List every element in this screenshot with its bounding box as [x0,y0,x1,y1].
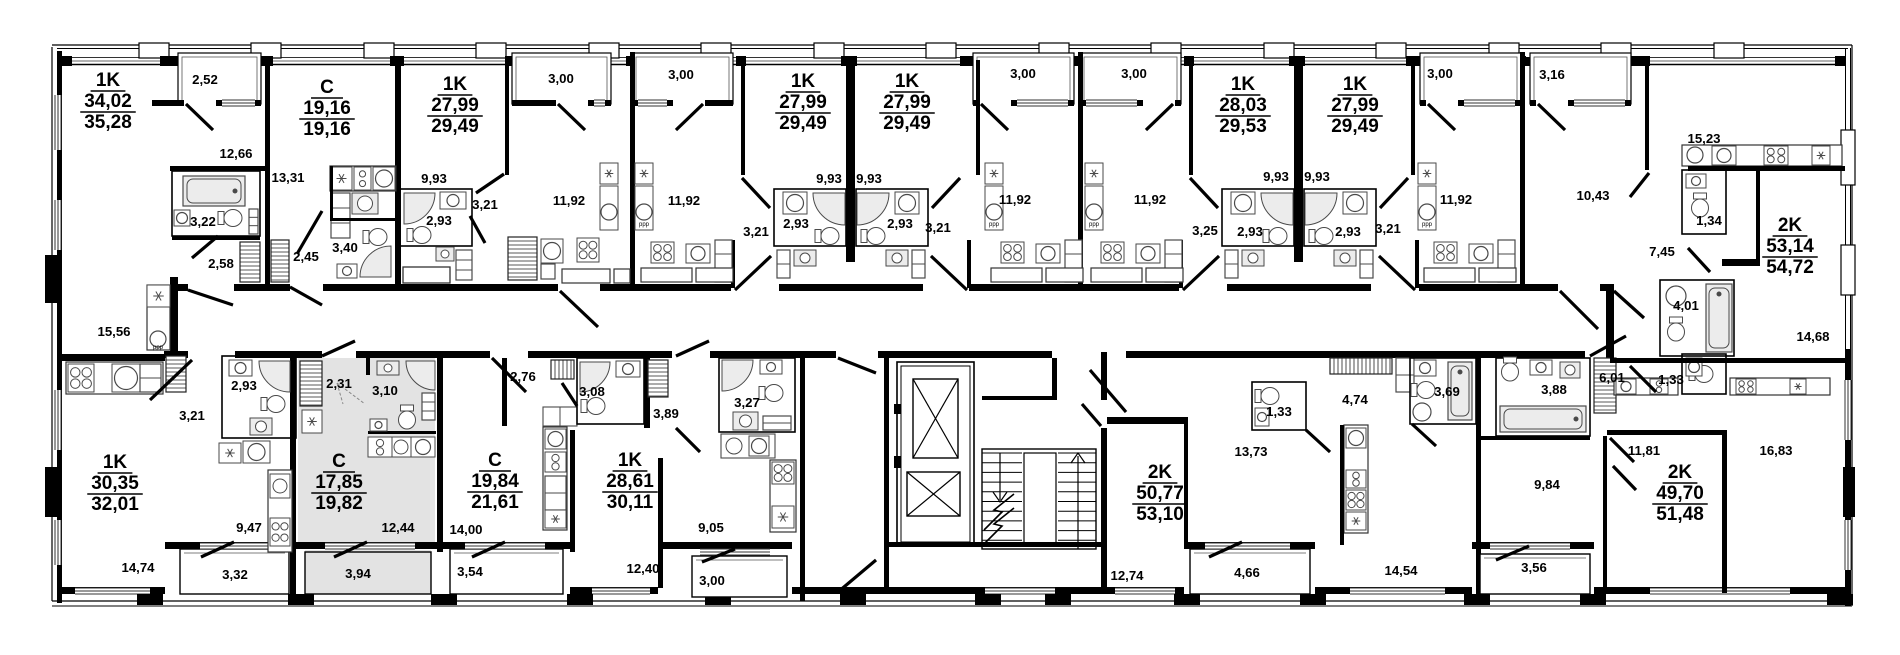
svg-text:2,93: 2,93 [1237,224,1263,239]
svg-text:35,28: 35,28 [84,112,132,133]
svg-text:15,56: 15,56 [97,324,130,339]
svg-text:19,16: 19,16 [303,119,351,140]
svg-text:3,21: 3,21 [1375,221,1401,236]
svg-text:3,00: 3,00 [699,573,725,588]
svg-text:1K: 1K [791,71,816,92]
svg-text:3,94: 3,94 [345,566,371,581]
svg-text:3,54: 3,54 [457,564,483,579]
svg-text:2,45: 2,45 [293,249,319,264]
svg-text:1K: 1K [1231,74,1256,95]
svg-text:1K: 1K [618,450,643,471]
svg-text:4,01: 4,01 [1673,298,1699,313]
svg-text:4,74: 4,74 [1342,392,1368,407]
svg-text:2,93: 2,93 [426,213,452,228]
svg-text:3,21: 3,21 [925,220,951,235]
svg-text:11,92: 11,92 [1134,192,1166,207]
svg-text:ppp: ppp [1422,222,1433,228]
svg-text:53,14: 53,14 [1766,236,1814,257]
svg-text:3,32: 3,32 [222,567,248,582]
svg-text:27,99: 27,99 [1331,95,1379,116]
svg-text:17,85: 17,85 [315,472,363,493]
svg-text:9,84: 9,84 [1534,477,1560,492]
svg-text:14,00: 14,00 [449,522,482,537]
svg-text:13,73: 13,73 [1234,444,1267,459]
svg-text:1K: 1K [443,74,468,95]
svg-text:16,83: 16,83 [1759,443,1792,458]
svg-text:3,00: 3,00 [548,71,574,86]
svg-text:19,84: 19,84 [471,471,519,492]
svg-text:C: C [332,451,346,472]
svg-text:9,47: 9,47 [236,520,262,535]
svg-text:2,93: 2,93 [231,378,257,393]
svg-text:3,27: 3,27 [734,395,760,410]
svg-text:1,34: 1,34 [1696,213,1722,228]
svg-text:6,01: 6,01 [1599,370,1625,385]
svg-text:3,89: 3,89 [653,406,679,421]
svg-text:2K: 2K [1148,462,1173,483]
svg-text:19,16: 19,16 [303,98,351,119]
svg-text:3,40: 3,40 [332,240,358,255]
svg-text:2,93: 2,93 [887,216,913,231]
svg-text:3,00: 3,00 [1010,66,1036,81]
svg-text:29,53: 29,53 [1219,116,1267,137]
svg-text:12,74: 12,74 [1110,568,1144,583]
svg-text:14,74: 14,74 [121,560,155,575]
svg-text:11,92: 11,92 [999,192,1031,207]
svg-text:11,81: 11,81 [1628,443,1660,458]
svg-text:2,31: 2,31 [326,376,352,391]
svg-text:4,66: 4,66 [1234,565,1260,580]
svg-text:3,88: 3,88 [1541,382,1567,397]
svg-text:53,10: 53,10 [1136,504,1184,525]
svg-text:1,33: 1,33 [1658,372,1684,387]
svg-text:32,01: 32,01 [91,494,139,515]
svg-text:3,25: 3,25 [1192,223,1218,238]
svg-text:51,48: 51,48 [1656,504,1704,525]
svg-text:15,23: 15,23 [1687,131,1720,146]
svg-text:2,52: 2,52 [192,72,218,87]
svg-text:ppp: ppp [639,222,650,228]
svg-text:9,93: 9,93 [421,171,447,186]
svg-text:3,21: 3,21 [472,197,498,212]
svg-text:14,54: 14,54 [1384,563,1418,578]
svg-text:29,49: 29,49 [1331,116,1379,137]
svg-text:21,61: 21,61 [471,492,519,513]
svg-text:34,02: 34,02 [84,91,132,112]
svg-text:12,66: 12,66 [219,146,252,161]
svg-text:54,72: 54,72 [1766,257,1814,278]
svg-text:2,93: 2,93 [783,216,809,231]
svg-text:2K: 2K [1778,215,1803,236]
svg-text:3,22: 3,22 [190,214,216,229]
svg-text:27,99: 27,99 [883,92,931,113]
svg-text:9,93: 9,93 [816,171,842,186]
svg-text:29,49: 29,49 [431,116,479,137]
svg-text:3,16: 3,16 [1539,67,1565,82]
svg-text:30,11: 30,11 [607,492,654,513]
svg-text:3,10: 3,10 [372,383,398,398]
svg-text:9,05: 9,05 [698,520,724,535]
svg-text:2,58: 2,58 [208,256,234,271]
svg-text:1,33: 1,33 [1266,404,1292,419]
svg-text:2,76: 2,76 [510,369,536,384]
svg-text:28,03: 28,03 [1219,95,1267,116]
svg-text:3,00: 3,00 [1427,66,1453,81]
svg-text:7,45: 7,45 [1649,244,1675,259]
svg-text:27,99: 27,99 [779,92,827,113]
svg-text:3,00: 3,00 [1121,66,1147,81]
svg-text:11,92: 11,92 [1440,192,1472,207]
svg-text:1K: 1K [96,70,121,91]
svg-text:2,93: 2,93 [1335,224,1361,239]
svg-text:9,93: 9,93 [1263,169,1289,184]
svg-text:50,77: 50,77 [1136,483,1184,504]
svg-text:49,70: 49,70 [1656,483,1704,504]
svg-text:27,99: 27,99 [431,95,479,116]
svg-text:3,00: 3,00 [668,67,694,82]
svg-text:9,93: 9,93 [1304,169,1330,184]
svg-text:30,35: 30,35 [91,473,139,494]
svg-text:ppp: ppp [153,345,164,351]
svg-text:1K: 1K [1343,74,1368,95]
svg-text:2K: 2K [1668,462,1693,483]
svg-text:C: C [320,77,334,98]
svg-text:3,69: 3,69 [1434,384,1460,399]
svg-text:14,68: 14,68 [1796,329,1829,344]
svg-text:29,49: 29,49 [779,113,827,134]
svg-text:3,56: 3,56 [1521,560,1547,575]
svg-text:11,92: 11,92 [553,193,585,208]
svg-text:19,82: 19,82 [315,493,363,514]
svg-text:11,92: 11,92 [668,193,700,208]
svg-text:ppp: ppp [989,222,1000,228]
svg-text:13,31: 13,31 [271,170,304,185]
svg-text:12,40: 12,40 [626,561,659,576]
svg-text:C: C [488,450,502,471]
svg-text:29,49: 29,49 [883,113,931,134]
svg-text:9,93: 9,93 [856,171,882,186]
svg-text:12,44: 12,44 [381,520,415,535]
svg-text:3,08: 3,08 [579,384,605,399]
svg-text:ppp: ppp [1089,222,1100,228]
svg-text:10,43: 10,43 [1576,188,1609,203]
svg-text:1K: 1K [103,452,128,473]
svg-text:3,21: 3,21 [743,224,769,239]
svg-text:1K: 1K [895,71,920,92]
svg-text:3,21: 3,21 [179,408,205,423]
svg-text:28,61: 28,61 [606,471,654,492]
